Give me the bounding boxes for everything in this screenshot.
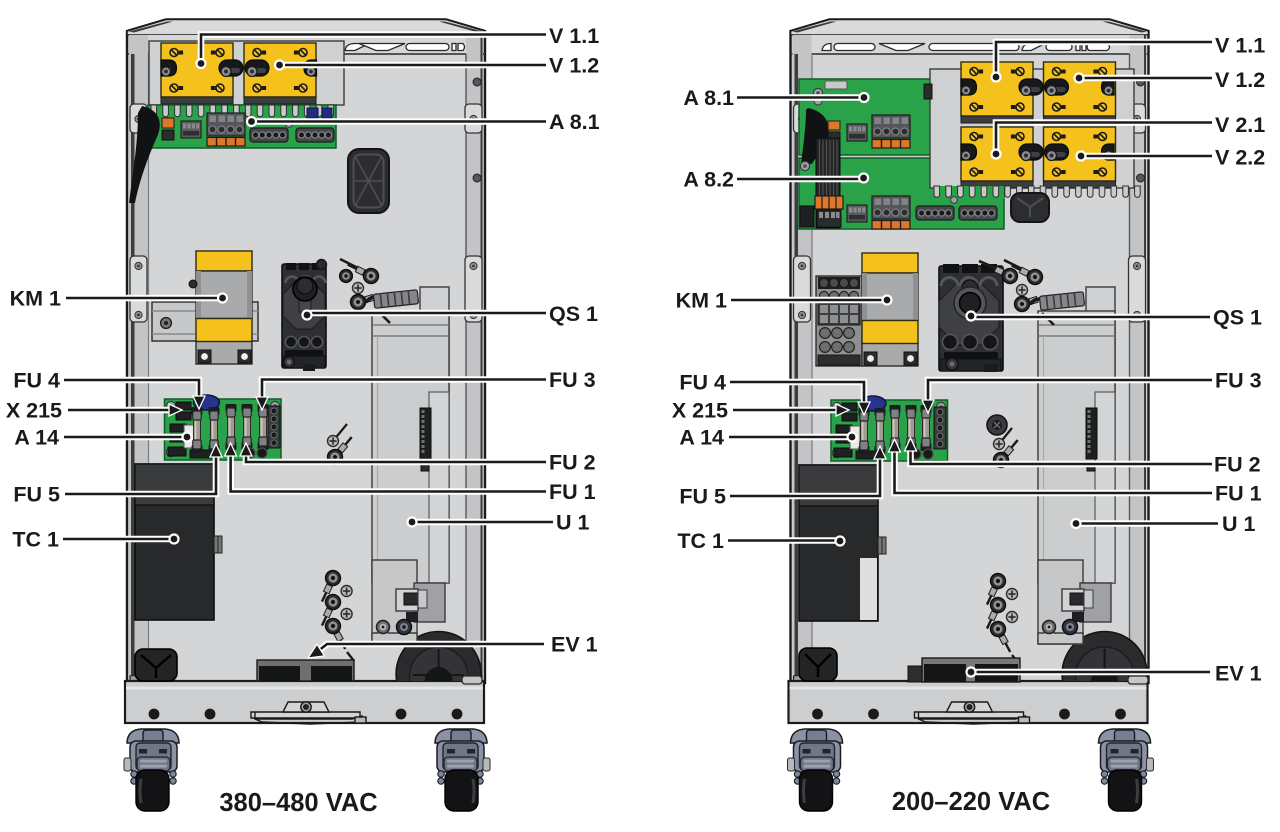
svg-text:A 8.1: A 8.1	[549, 110, 600, 134]
svg-text:QS 1: QS 1	[549, 302, 598, 326]
svg-text:V 1.1: V 1.1	[549, 24, 599, 48]
svg-text:X 215: X 215	[672, 399, 728, 423]
svg-text:U 1: U 1	[556, 511, 590, 535]
svg-text:TC 1: TC 1	[12, 528, 59, 552]
svg-text:A 14: A 14	[679, 426, 724, 450]
svg-text:FU 4: FU 4	[13, 369, 60, 393]
svg-text:TC 1: TC 1	[677, 529, 724, 553]
svg-text:QS 1: QS 1	[1213, 306, 1262, 330]
svg-text:FU 2: FU 2	[1214, 453, 1261, 477]
svg-text:FU 5: FU 5	[679, 485, 726, 509]
svg-text:FU 5: FU 5	[13, 483, 60, 507]
svg-text:EV 1: EV 1	[551, 633, 598, 657]
svg-text:A 14: A 14	[14, 426, 59, 450]
svg-text:KM 1: KM 1	[10, 287, 61, 311]
svg-text:X 215: X 215	[6, 399, 62, 423]
svg-text:FU 3: FU 3	[1215, 369, 1262, 393]
svg-text:FU 1: FU 1	[1215, 482, 1262, 506]
svg-text:EV 1: EV 1	[1215, 662, 1262, 686]
svg-text:U 1: U 1	[1222, 512, 1256, 536]
svg-text:V 2.1: V 2.1	[1215, 113, 1265, 137]
svg-text:FU 1: FU 1	[549, 480, 596, 504]
svg-text:FU 4: FU 4	[679, 371, 726, 395]
svg-text:FU 3: FU 3	[549, 368, 596, 392]
svg-text:V 2.2: V 2.2	[1215, 146, 1265, 170]
svg-text:V 1.2: V 1.2	[549, 54, 599, 78]
svg-text:V 1.2: V 1.2	[1215, 68, 1265, 92]
svg-text:V 1.1: V 1.1	[1215, 34, 1265, 58]
svg-text:380–480 VAC: 380–480 VAC	[219, 789, 377, 817]
svg-text:200–220 VAC: 200–220 VAC	[892, 788, 1050, 816]
svg-text:A 8.2: A 8.2	[683, 168, 734, 192]
svg-text:FU 2: FU 2	[549, 451, 596, 475]
svg-text:A 8.1: A 8.1	[683, 86, 734, 110]
svg-text:KM 1: KM 1	[676, 289, 727, 313]
